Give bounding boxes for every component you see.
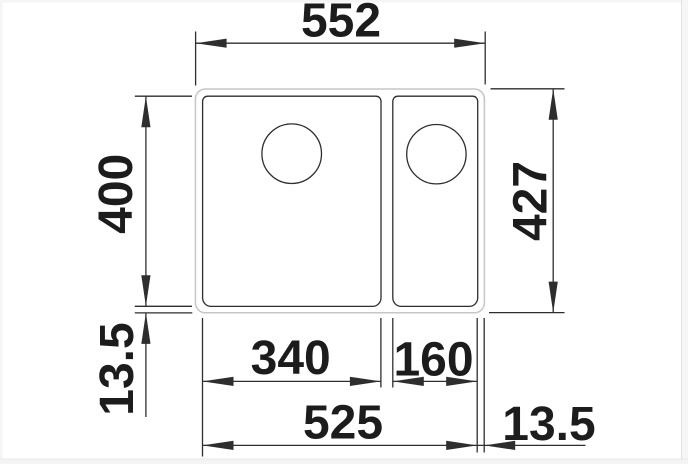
svg-text:400: 400 — [90, 154, 143, 234]
svg-text:13.5: 13.5 — [91, 322, 144, 415]
svg-text:13.5: 13.5 — [502, 398, 595, 451]
svg-text:525: 525 — [303, 397, 383, 450]
svg-text:160: 160 — [393, 334, 473, 387]
svg-text:552: 552 — [301, 0, 381, 48]
svg-text:340: 340 — [251, 332, 331, 385]
svg-text:427: 427 — [505, 161, 558, 241]
